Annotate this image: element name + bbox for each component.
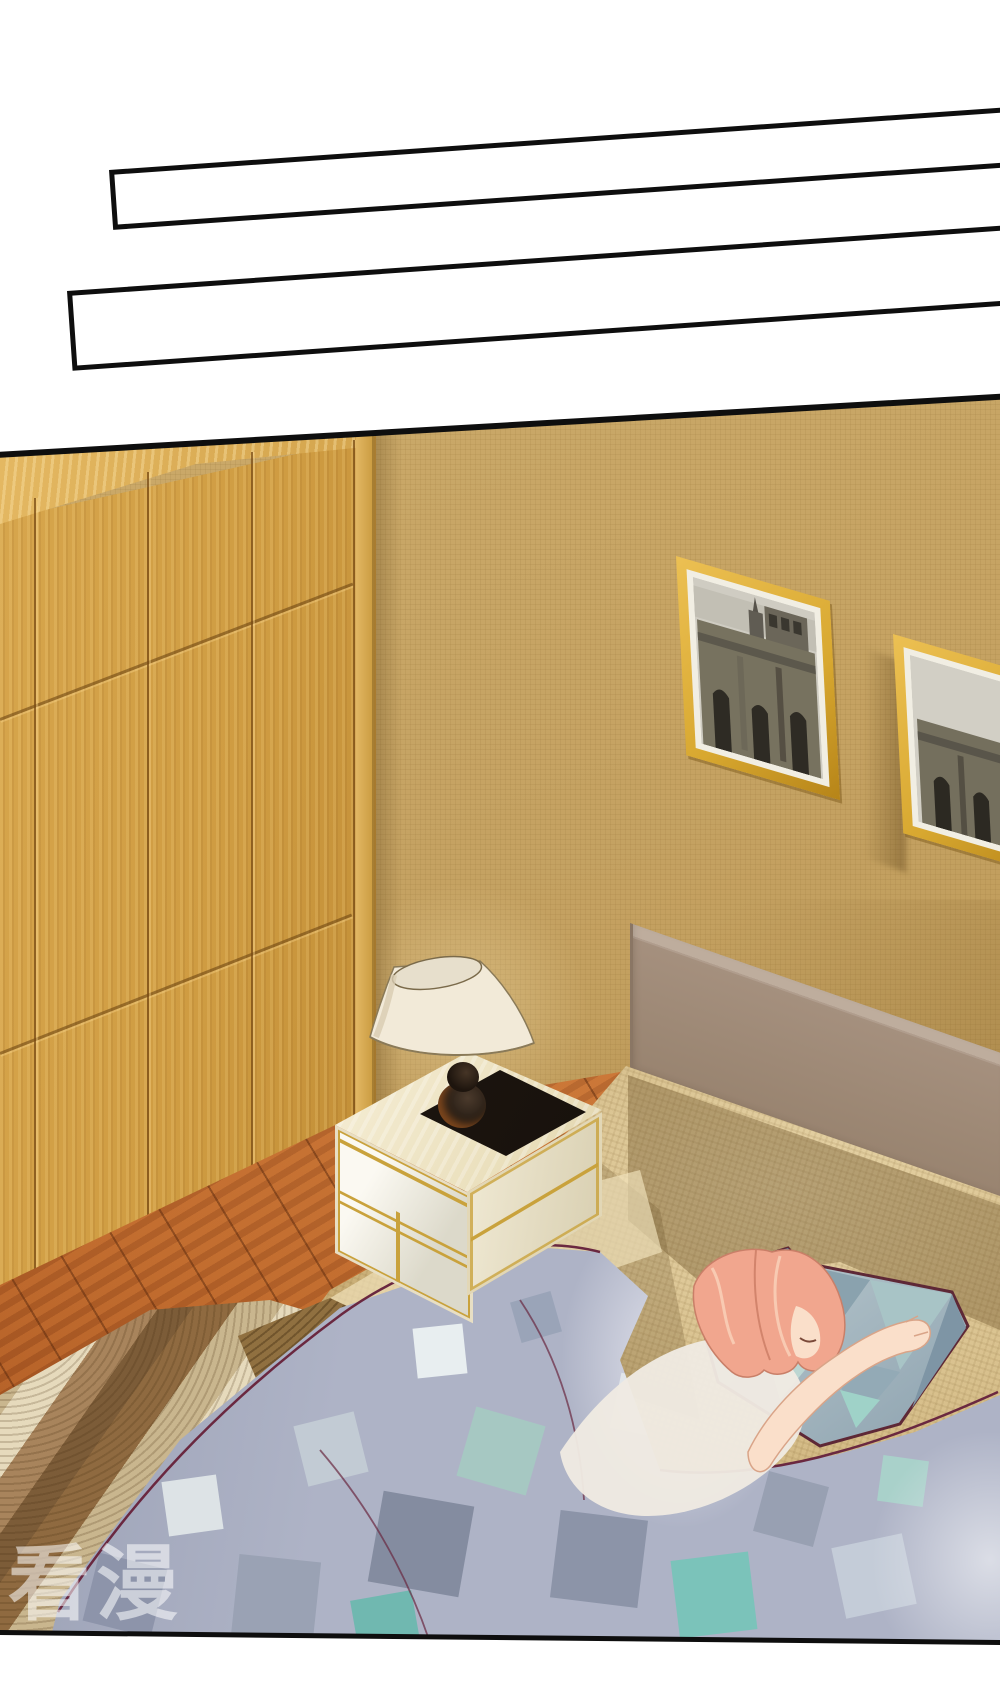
speech-box: [67, 221, 1000, 371]
speech-box: [109, 103, 1000, 230]
watermark: 看漫: [8, 1544, 184, 1626]
comic-page: 看漫: [0, 0, 1000, 1681]
lamp-shade: [358, 945, 548, 1075]
